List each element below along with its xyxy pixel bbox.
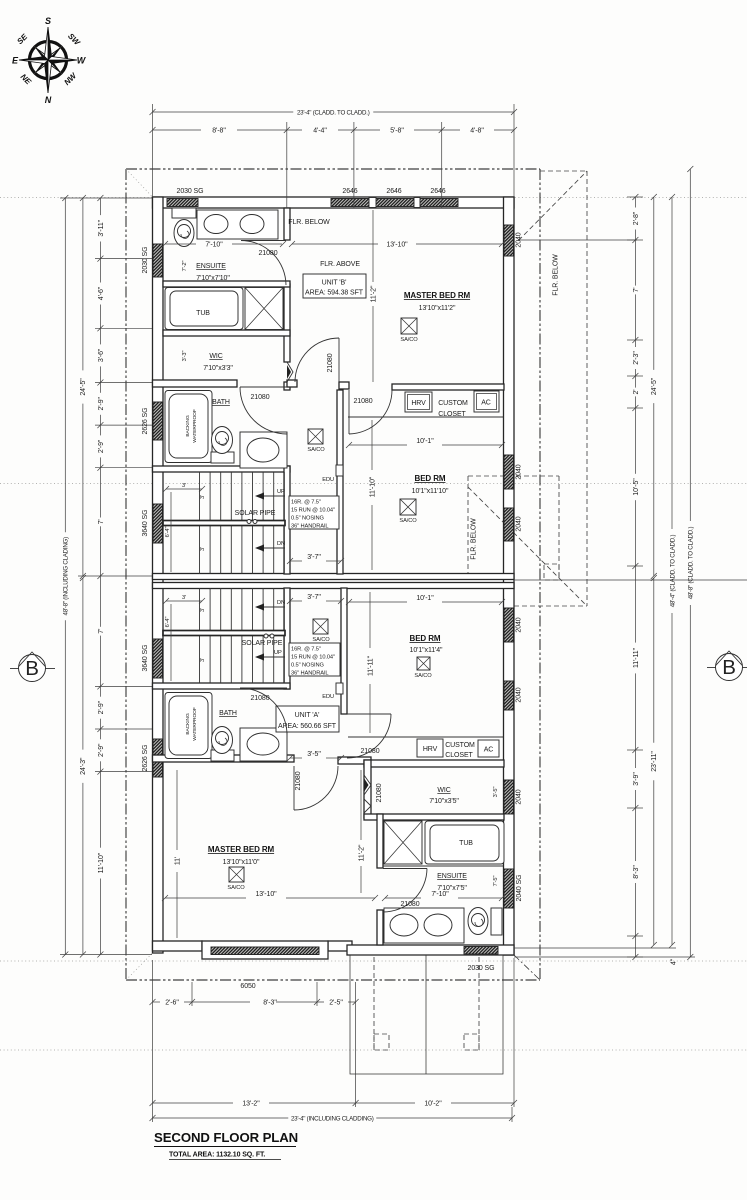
svg-text:CLOSET: CLOSET xyxy=(445,752,473,759)
svg-text:WATERPROOF: WATERPROOF xyxy=(192,707,198,741)
svg-text:WIC: WIC xyxy=(209,353,222,360)
svg-text:3': 3' xyxy=(200,658,206,662)
svg-text:0.5" NOSING: 0.5" NOSING xyxy=(291,516,324,522)
svg-text:23'-11": 23'-11" xyxy=(651,751,658,772)
svg-text:21080: 21080 xyxy=(251,695,270,702)
svg-text:2040: 2040 xyxy=(516,789,523,804)
svg-text:TUB: TUB xyxy=(459,840,473,847)
svg-text:2': 2' xyxy=(633,389,640,394)
svg-text:AREA: 594.38 SFT: AREA: 594.38 SFT xyxy=(305,290,364,297)
svg-text:5'-8": 5'-8" xyxy=(390,128,404,135)
svg-text:FLR. BELOW: FLR. BELOW xyxy=(288,219,330,226)
svg-text:7'-10": 7'-10" xyxy=(431,891,449,898)
svg-text:SECOND FLOOR PLAN: SECOND FLOOR PLAN xyxy=(154,1130,298,1145)
svg-text:S: S xyxy=(45,16,51,26)
svg-text:8'-3": 8'-3" xyxy=(633,865,640,879)
svg-text:2030 SG: 2030 SG xyxy=(177,188,204,195)
svg-text:6'-4": 6'-4" xyxy=(165,527,171,538)
svg-text:24'-3": 24'-3" xyxy=(80,757,87,775)
svg-text:BATH: BATH xyxy=(212,399,230,406)
svg-text:AC: AC xyxy=(484,747,494,754)
svg-text:2'-5": 2'-5" xyxy=(329,1000,343,1007)
svg-text:2040: 2040 xyxy=(516,516,523,531)
svg-text:10'1"x11'4": 10'1"x11'4" xyxy=(410,647,443,654)
svg-text:2'-8": 2'-8" xyxy=(633,211,640,225)
svg-text:CUSTOM: CUSTOM xyxy=(445,742,475,749)
svg-text:2040: 2040 xyxy=(516,464,523,479)
svg-text:MASTER BED RM: MASTER BED RM xyxy=(404,291,471,300)
svg-text:36" HANDRAIL: 36" HANDRAIL xyxy=(291,671,329,677)
svg-text:3'-5": 3'-5" xyxy=(307,751,321,758)
svg-text:0.5" NOSING: 0.5" NOSING xyxy=(291,663,324,669)
svg-text:DN: DN xyxy=(277,541,285,547)
svg-text:16R. @ 7.5": 16R. @ 7.5" xyxy=(291,647,321,653)
svg-text:7'10"x7'10": 7'10"x7'10" xyxy=(196,275,230,282)
svg-text:3'-5": 3'-5" xyxy=(493,787,499,798)
svg-text:BACKING: BACKING xyxy=(185,713,191,735)
svg-text:23'-4" (CLADD. TO CLADD.): 23'-4" (CLADD. TO CLADD.) xyxy=(297,109,370,116)
svg-text:SA/CO: SA/CO xyxy=(312,637,330,643)
svg-text:BED RM: BED RM xyxy=(415,474,446,483)
svg-text:WATERPROOF: WATERPROOF xyxy=(192,409,198,443)
svg-text:11'-11": 11'-11" xyxy=(633,647,640,668)
svg-text:48'-8" (INCLUDING CLADING): 48'-8" (INCLUDING CLADING) xyxy=(63,537,70,616)
svg-text:24'-5": 24'-5" xyxy=(651,377,658,395)
svg-text:UNIT 'A': UNIT 'A' xyxy=(295,712,320,719)
svg-text:3640 SG: 3640 SG xyxy=(142,645,149,672)
svg-text:2'-6": 2'-6" xyxy=(165,1000,179,1007)
svg-text:2040: 2040 xyxy=(516,617,523,632)
svg-text:11'-10": 11'-10" xyxy=(370,476,377,497)
svg-text:24'-5": 24'-5" xyxy=(80,378,87,396)
svg-text:13'10"x11'0": 13'10"x11'0" xyxy=(223,859,260,866)
svg-text:SA/CO: SA/CO xyxy=(399,518,417,524)
svg-text:SOLAR PIPE: SOLAR PIPE xyxy=(242,640,283,647)
svg-text:7'-5": 7'-5" xyxy=(493,876,499,887)
svg-text:4": 4" xyxy=(671,958,678,965)
svg-text:7'-2": 7'-2" xyxy=(182,261,188,272)
svg-text:BED RM: BED RM xyxy=(410,634,441,643)
svg-text:8'-8": 8'-8" xyxy=(212,128,226,135)
svg-text:7'10"x3'5": 7'10"x3'5" xyxy=(429,798,459,805)
svg-text:21080: 21080 xyxy=(251,394,270,401)
svg-text:11'-2": 11'-2" xyxy=(371,285,378,302)
svg-text:15 RUN @ 10.04": 15 RUN @ 10.04" xyxy=(291,655,335,661)
svg-text:FLR. ABOVE: FLR. ABOVE xyxy=(320,261,360,268)
svg-text:ENSUITE: ENSUITE xyxy=(437,873,467,880)
svg-text:7': 7' xyxy=(98,629,105,634)
svg-text:2'-3": 2'-3" xyxy=(633,351,640,365)
svg-text:11'-11": 11'-11" xyxy=(368,655,375,676)
svg-text:6'-4": 6'-4" xyxy=(165,617,171,628)
svg-text:36" HANDRAIL: 36" HANDRAIL xyxy=(291,524,329,530)
svg-text:3': 3' xyxy=(200,547,206,551)
svg-text:21080: 21080 xyxy=(327,353,334,372)
svg-text:WIC: WIC xyxy=(437,787,450,794)
svg-text:SA/CO: SA/CO xyxy=(307,447,325,453)
svg-text:11'-2": 11'-2" xyxy=(359,844,366,861)
svg-text:2040: 2040 xyxy=(516,687,523,702)
svg-text:21080: 21080 xyxy=(376,783,383,802)
svg-text:3': 3' xyxy=(200,608,206,612)
svg-text:48'-8" (CLADD. TO CLADD.): 48'-8" (CLADD. TO CLADD.) xyxy=(688,527,695,600)
svg-text:11'-10": 11'-10" xyxy=(98,852,105,873)
svg-text:7': 7' xyxy=(633,287,640,292)
svg-text:DN: DN xyxy=(277,600,285,606)
svg-text:4'-8": 4'-8" xyxy=(470,128,484,135)
svg-text:2'-9": 2'-9" xyxy=(98,396,105,410)
svg-text:FLR. BELOW: FLR. BELOW xyxy=(471,518,478,560)
svg-text:4'-6": 4'-6" xyxy=(98,286,105,300)
svg-text:21080: 21080 xyxy=(259,250,278,257)
svg-text:7': 7' xyxy=(98,519,105,524)
svg-text:UP: UP xyxy=(277,489,285,495)
svg-text:3'-11": 3'-11" xyxy=(98,219,105,236)
svg-text:21080: 21080 xyxy=(354,398,373,405)
svg-text:2030 SG: 2030 SG xyxy=(142,247,149,274)
svg-text:N: N xyxy=(45,95,52,105)
svg-text:23'-4" (INCLUDING CLADDING): 23'-4" (INCLUDING CLADDING) xyxy=(291,1115,374,1122)
svg-text:13'-10": 13'-10" xyxy=(386,242,408,249)
svg-text:10'-2": 10'-2" xyxy=(424,1101,442,1108)
svg-text:16R. @ 7.5": 16R. @ 7.5" xyxy=(291,500,321,506)
svg-text:10'-1": 10'-1" xyxy=(416,595,434,602)
svg-text:B: B xyxy=(722,656,736,679)
svg-text:21080: 21080 xyxy=(401,901,420,908)
svg-text:2626 SG: 2626 SG xyxy=(142,408,149,435)
svg-text:7'10"x3'3": 7'10"x3'3" xyxy=(203,365,233,372)
svg-text:UP: UP xyxy=(274,650,282,656)
svg-text:3': 3' xyxy=(182,595,186,601)
svg-text:15 RUN @ 10.04": 15 RUN @ 10.04" xyxy=(291,508,335,514)
svg-text:EDU: EDU xyxy=(322,694,334,700)
svg-text:7'-10": 7'-10" xyxy=(205,242,223,249)
svg-text:3': 3' xyxy=(182,483,186,489)
svg-text:2646: 2646 xyxy=(342,188,357,195)
svg-text:FLR. BELOW: FLR. BELOW xyxy=(553,254,560,296)
svg-text:48'-4" (CLADD. TO CLADD.): 48'-4" (CLADD. TO CLADD.) xyxy=(669,535,676,608)
svg-text:21080: 21080 xyxy=(295,771,302,790)
svg-text:6050: 6050 xyxy=(240,983,255,990)
svg-text:2'-9": 2'-9" xyxy=(98,439,105,453)
svg-text:TOTAL AREA: 1132.10 SQ. FT.: TOTAL AREA: 1132.10 SQ. FT. xyxy=(169,1152,265,1159)
svg-text:10'-5": 10'-5" xyxy=(633,478,640,496)
svg-text:HRV: HRV xyxy=(423,746,438,753)
svg-text:AC: AC xyxy=(481,400,491,407)
svg-text:2030 SG: 2030 SG xyxy=(468,965,495,972)
svg-text:3': 3' xyxy=(200,495,206,499)
svg-text:2646: 2646 xyxy=(386,188,401,195)
svg-text:21080: 21080 xyxy=(361,748,380,755)
svg-text:TUB: TUB xyxy=(196,310,210,317)
svg-text:2626 SG: 2626 SG xyxy=(142,745,149,772)
svg-text:CLOSET: CLOSET xyxy=(438,411,466,418)
svg-text:8'-3": 8'-3" xyxy=(263,1000,277,1007)
svg-text:3'-6": 3'-6" xyxy=(98,348,105,362)
svg-text:SA/CO: SA/CO xyxy=(400,337,418,343)
svg-text:2646: 2646 xyxy=(430,188,445,195)
svg-text:2'-9": 2'-9" xyxy=(98,743,105,757)
svg-text:MASTER BED RM: MASTER BED RM xyxy=(208,845,275,854)
svg-text:2040 SG: 2040 SG xyxy=(516,875,523,902)
svg-text:3'-7": 3'-7" xyxy=(307,554,321,561)
svg-text:EDU: EDU xyxy=(322,477,334,483)
svg-text:2'-9": 2'-9" xyxy=(98,700,105,714)
svg-text:ENSUITE: ENSUITE xyxy=(196,263,226,270)
svg-text:13'-10": 13'-10" xyxy=(255,891,277,898)
svg-text:4'-4": 4'-4" xyxy=(313,128,327,135)
svg-text:10'-1": 10'-1" xyxy=(416,438,434,445)
svg-text:10'1"x11'10": 10'1"x11'10" xyxy=(412,488,449,495)
svg-text:SA/CO: SA/CO xyxy=(414,673,432,679)
svg-text:BACKING: BACKING xyxy=(185,415,191,437)
svg-text:SA/CO: SA/CO xyxy=(227,885,245,891)
svg-text:3640 SG: 3640 SG xyxy=(142,510,149,537)
svg-text:3'-7": 3'-7" xyxy=(307,594,321,601)
svg-text:HRV: HRV xyxy=(411,400,426,407)
svg-text:CUSTOM: CUSTOM xyxy=(438,400,468,407)
svg-text:13'10"x11'2": 13'10"x11'2" xyxy=(419,305,456,312)
svg-text:B: B xyxy=(25,657,39,680)
svg-text:UNIT 'B': UNIT 'B' xyxy=(322,280,347,287)
svg-text:BATH: BATH xyxy=(219,710,237,717)
svg-text:3'-3": 3'-3" xyxy=(182,351,188,362)
svg-text:11': 11' xyxy=(175,857,182,865)
svg-text:13'-2": 13'-2" xyxy=(242,1101,260,1108)
svg-text:SOLAR PIPE: SOLAR PIPE xyxy=(235,510,276,517)
svg-text:3'-9": 3'-9" xyxy=(633,772,640,786)
